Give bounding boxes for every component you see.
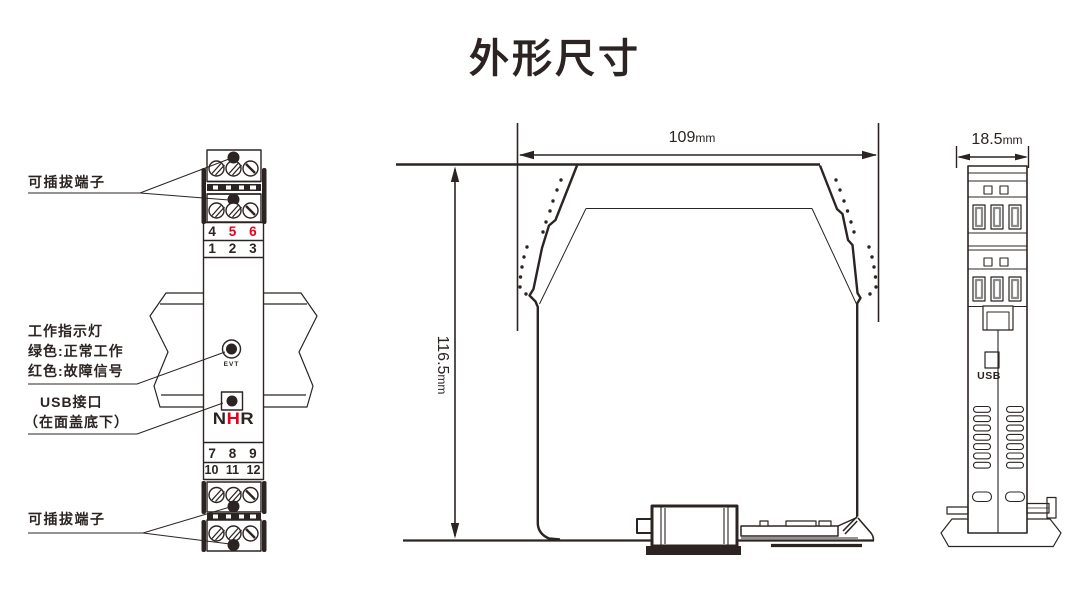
height-unit: mm bbox=[435, 374, 449, 394]
page-title: 外形尺寸 bbox=[440, 26, 670, 84]
terminal-5: 5 bbox=[222, 224, 242, 239]
height-dimension-label: 116.5mm bbox=[433, 313, 451, 417]
line-art bbox=[0, 0, 1080, 607]
logo-letter-r: R bbox=[240, 409, 254, 428]
terminal-numbers-101112: 10 11 12 bbox=[201, 463, 264, 477]
depth-unit: mm bbox=[1003, 133, 1023, 147]
callout-pluggable-terminal-top: 可插拔端子 bbox=[28, 172, 106, 192]
end-view-drawing bbox=[941, 146, 1061, 547]
terminal-3: 3 bbox=[243, 241, 263, 256]
width-value: 109 bbox=[669, 129, 696, 146]
terminal-6: 6 bbox=[243, 224, 263, 239]
depth-dimension-label: 18.5mm bbox=[957, 131, 1037, 149]
terminal-2: 2 bbox=[222, 241, 242, 256]
terminal-11: 11 bbox=[222, 463, 243, 477]
depth-dimension-graphic bbox=[957, 146, 1029, 168]
side-view-drawing bbox=[396, 123, 879, 555]
terminal-numbers-789: 7 8 9 bbox=[202, 446, 263, 461]
end-body-outline bbox=[968, 166, 1027, 533]
evt-indicator-graphic bbox=[223, 340, 241, 358]
usb-side-label: USB bbox=[972, 370, 1006, 382]
callout-indicator: 工作指示灯 绿色:正常工作 红色:故障信号 bbox=[28, 321, 124, 381]
callout-usb-line2: （在面盖底下） bbox=[24, 412, 129, 432]
terminal-10: 10 bbox=[201, 463, 222, 477]
outline-dimensions-diagram: 外形尺寸 可插拔端子 工作指示灯 绿色:正常工作 红色:故障信号 USB接口 （… bbox=[0, 0, 1080, 607]
width-dimension-label: 109mm bbox=[632, 129, 752, 147]
callout-indicator-line1: 工作指示灯 bbox=[28, 321, 124, 341]
height-value: 116.5 bbox=[434, 336, 451, 375]
side-inner-outline bbox=[540, 209, 857, 305]
callout-indicator-line2: 绿色:正常工作 bbox=[28, 341, 124, 361]
terminal-8: 8 bbox=[222, 446, 242, 461]
callout-usb-line1: USB接口 bbox=[24, 392, 129, 412]
evt-label: EVT bbox=[203, 361, 260, 368]
terminal-4: 4 bbox=[202, 224, 222, 239]
nhr-logo: NHR bbox=[201, 409, 267, 429]
width-dimension-graphic bbox=[518, 123, 879, 331]
terminal-12: 12 bbox=[243, 463, 264, 477]
width-unit: mm bbox=[695, 131, 715, 145]
terminal-9: 9 bbox=[243, 446, 263, 461]
top-terminal-block bbox=[202, 150, 267, 224]
terminal-numbers-456: 4 5 6 bbox=[202, 224, 263, 239]
terminal-7: 7 bbox=[202, 446, 222, 461]
side-body-outline bbox=[530, 166, 874, 541]
logo-letter-n: N bbox=[213, 409, 227, 428]
terminal-numbers-123: 1 2 3 bbox=[202, 241, 263, 256]
logo-letter-h: H bbox=[227, 409, 241, 428]
usb-port-graphic bbox=[222, 392, 243, 410]
height-dimension-graphic bbox=[451, 167, 459, 539]
terminal-1: 1 bbox=[202, 241, 222, 256]
callout-pluggable-terminal-bottom: 可插拔端子 bbox=[28, 509, 106, 529]
callout-indicator-line3: 红色:故障信号 bbox=[28, 361, 124, 381]
callout-usb: USB接口 （在面盖底下） bbox=[24, 392, 129, 432]
depth-value: 18.5 bbox=[971, 131, 1002, 148]
din-clip-graphic bbox=[637, 506, 862, 555]
